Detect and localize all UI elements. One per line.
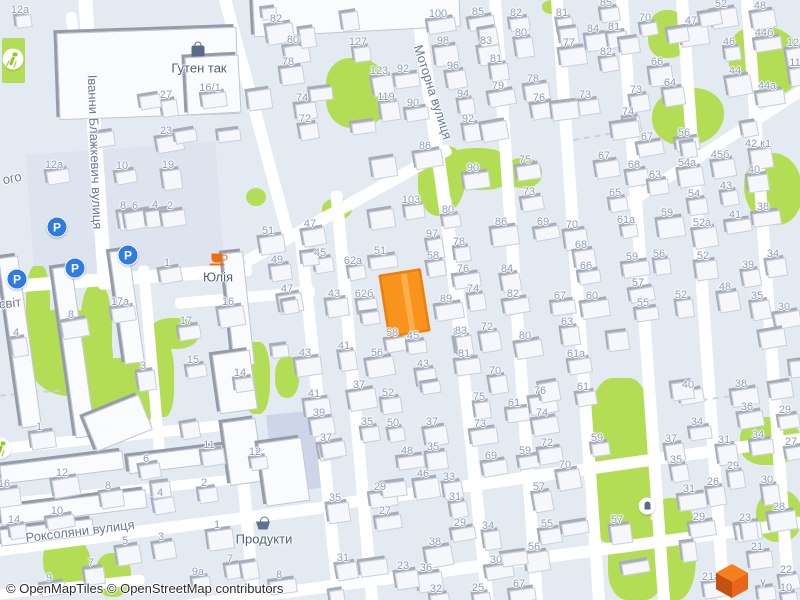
parking-icon: P: [118, 245, 139, 266]
building: [326, 298, 350, 319]
house-number-label: 57: [632, 277, 644, 289]
house-number-label: 89: [440, 293, 452, 305]
house-number-label: 52: [715, 0, 727, 10]
house-number-label: 73: [474, 418, 486, 430]
building: [161, 99, 179, 118]
building: [353, 46, 372, 63]
house-number-label: 44: [729, 65, 741, 77]
house-number-label: 54a: [678, 157, 696, 169]
house-number-label: 59: [626, 251, 638, 263]
house-number-label: 72: [481, 321, 493, 333]
house-number-label: 48: [719, 281, 731, 293]
house-number-label: 2: [201, 477, 207, 489]
building: [482, 530, 501, 551]
house-number-label: 11: [203, 439, 214, 451]
house-number-label: 8: [276, 569, 282, 581]
building: [11, 337, 30, 358]
house-number-label: 43: [720, 180, 732, 192]
building: [366, 356, 397, 380]
openstreetmap-link[interactable]: OpenStreetMap contributors: [120, 581, 283, 596]
house-number-label: 5: [122, 535, 128, 547]
cup-icon: [212, 254, 223, 263]
building: [15, 14, 33, 29]
house-number-label: 30: [778, 301, 790, 313]
house-number-label: 48: [754, 0, 766, 12]
house-number-label: 55: [541, 518, 553, 530]
house-number-label: 83: [455, 325, 467, 337]
house-number-label: 9a: [192, 566, 204, 578]
house-number-label: 25: [472, 582, 484, 594]
house-number-label: 82: [270, 13, 282, 25]
house-number-label: 35: [361, 416, 373, 428]
building: [234, 377, 255, 394]
house-number-label: 63: [649, 169, 661, 181]
building: [427, 260, 448, 279]
building: [724, 46, 742, 62]
building: [558, 46, 587, 68]
house-number-label: 34: [691, 416, 703, 428]
building: [200, 448, 225, 467]
house-number-label: 56: [653, 248, 665, 260]
building: [198, 487, 219, 504]
house-number-label: 86: [419, 140, 431, 152]
house-number-label: 44б: [755, 27, 774, 39]
house-number-label: 84: [587, 23, 599, 35]
building: [467, 293, 486, 312]
building: [609, 524, 632, 546]
house-number-label: 58: [427, 250, 439, 262]
house-number-label: 7: [227, 553, 233, 565]
house-number-label: 1: [164, 257, 170, 269]
building: [551, 100, 580, 121]
building: [695, 260, 719, 282]
house-number-label: 70: [639, 12, 651, 24]
building: [338, 350, 358, 372]
parking-icon: P: [47, 217, 68, 238]
building: [99, 489, 124, 509]
house-number-label: 16: [0, 478, 10, 490]
house-number-label: 72: [541, 437, 553, 449]
building: [442, 214, 462, 230]
house-number-label: 59: [661, 207, 673, 219]
building: [578, 99, 601, 117]
house-number-label: 61: [577, 381, 589, 393]
building: [789, 358, 800, 378]
building: [207, 528, 236, 551]
house-number-label: 73: [523, 186, 535, 198]
house-number-label: 61: [508, 397, 520, 409]
house-number-label: 28: [773, 501, 785, 513]
house-number-label: 10: [116, 160, 128, 172]
house-number-label: 81: [556, 7, 568, 19]
house-number-label: 57: [533, 481, 545, 493]
building: [381, 397, 403, 416]
house-number-label: 42 к1: [745, 138, 771, 150]
building: [746, 174, 769, 194]
house-number-label: 52: [382, 387, 394, 399]
house-number-label: 43: [417, 358, 429, 370]
building: [678, 492, 708, 512]
house-number-label: 31: [683, 483, 695, 495]
building: [717, 290, 741, 313]
house-number-label: 47: [304, 218, 316, 230]
building: [532, 491, 554, 514]
parking-icon: P: [7, 269, 28, 290]
house-number-label: 40: [682, 379, 694, 391]
house-number-label: 57: [611, 514, 623, 526]
building: [607, 331, 630, 352]
building: [532, 416, 561, 437]
building: [341, 11, 361, 32]
building: [388, 427, 406, 444]
house-number-label: 78: [527, 73, 539, 85]
house-number-label: 83: [480, 35, 492, 47]
building: [379, 101, 400, 122]
building: [347, 265, 366, 282]
building: [748, 550, 774, 570]
house-number-label: 50: [387, 417, 399, 429]
building: [750, 299, 772, 321]
building: [137, 370, 158, 392]
building: [279, 65, 304, 86]
house-number-label: 34: [482, 520, 494, 532]
building: [741, 121, 759, 139]
house-number-label: 43: [299, 347, 311, 359]
building: [725, 74, 753, 98]
house-number-label: 80: [515, 27, 527, 39]
house-number-label: 77: [563, 37, 575, 49]
house-number-label: 29: [693, 511, 705, 523]
house-number-label: 1: [36, 421, 42, 433]
house-number-label: 45б: [711, 149, 730, 161]
house-number-label: 81: [608, 21, 620, 33]
house-number-label: 59: [591, 432, 603, 444]
building: [0, 487, 22, 508]
house-number-label: 16: [222, 296, 234, 308]
house-number-label: 80: [287, 34, 299, 46]
building: [769, 380, 794, 400]
building: [654, 258, 672, 276]
house-number-label: 29: [374, 481, 386, 493]
house-number-label: 41: [338, 340, 350, 352]
house-number-label: 67: [598, 150, 610, 162]
house-number-label: 8: [105, 480, 111, 492]
building: [789, 67, 800, 87]
house-number-label: 74: [622, 106, 634, 118]
house-number-label: 49: [271, 254, 283, 266]
building: [269, 264, 292, 283]
house-number-label: 63: [561, 316, 573, 328]
building: [539, 527, 563, 545]
house-number-label: 76: [533, 92, 545, 104]
house-number-label: 67: [641, 131, 653, 143]
house-number-label: 19: [162, 159, 174, 171]
house-number-label: 119: [377, 91, 395, 103]
house-number-label: 4: [157, 487, 163, 499]
building: [479, 330, 502, 353]
house-number-label: 45: [314, 247, 326, 259]
building: [361, 311, 381, 326]
house-number-label: 56: [528, 541, 540, 553]
building: [711, 158, 737, 180]
building: [301, 227, 327, 248]
house-number-label: 12a: [45, 159, 63, 171]
house-number-label: 81: [490, 53, 502, 65]
house-number-label: 85: [472, 6, 484, 18]
house-number-label: 79: [492, 80, 504, 92]
house-number-label: 36: [420, 562, 432, 574]
house-number-label: 12: [249, 446, 261, 458]
house-number-label: 103: [402, 194, 420, 206]
house-number-label: 8: [68, 309, 74, 321]
house-number-label: 32: [430, 583, 442, 595]
building: [218, 305, 247, 329]
runner-icon: [0, 438, 12, 459]
building: [675, 299, 694, 319]
house-number-label: 64: [664, 77, 676, 89]
house-number-label: 47: [685, 15, 697, 27]
house-number-label: 78: [453, 236, 465, 248]
house-number-label: 61a: [567, 348, 585, 360]
house-number-label: 3: [158, 531, 164, 543]
house-number-label: 17a: [111, 296, 129, 308]
house-number-label: 44a: [758, 80, 776, 92]
building: [413, 477, 441, 501]
house-number-label: 30: [761, 474, 773, 486]
house-number-label: 90: [467, 162, 479, 174]
house-number-label: 123: [370, 65, 388, 77]
house-number-label: 52: [675, 289, 687, 301]
building: [159, 266, 183, 285]
runner-icon: [3, 49, 24, 70]
house-number-label: 51: [262, 225, 274, 237]
house-number-label: 36: [741, 401, 753, 413]
building: [742, 269, 763, 289]
house-number-label: 6: [143, 453, 149, 465]
building: [455, 357, 482, 376]
house-number-label: 31: [718, 434, 730, 446]
house-number-label: 45: [407, 330, 419, 342]
house-number-label: 35: [329, 492, 341, 504]
house-number-label: 86: [495, 216, 507, 228]
house-number-label: 70: [489, 365, 501, 377]
house-number-label: 35: [670, 454, 682, 466]
house-number-label: 127: [349, 36, 367, 48]
bag-icon: [192, 46, 205, 57]
house-number-label: 61a: [617, 214, 635, 226]
copyright-prefix: ©: [6, 581, 19, 596]
building: [347, 388, 378, 413]
building: [271, 344, 289, 359]
house-number-label: 70: [559, 459, 571, 471]
building: [677, 166, 705, 189]
house-number-label: 17: [180, 315, 192, 327]
house-number-label: 67: [554, 290, 566, 302]
building: [581, 299, 611, 320]
house-number-label: 26: [707, 476, 719, 488]
house-number-label: 52a: [693, 217, 711, 229]
house-number-label: 23: [160, 125, 172, 137]
house-number-label: 12a: [11, 4, 29, 16]
house-number-label: 59: [519, 445, 531, 457]
street-name-label: ого: [1, 169, 23, 188]
house-number-label: 4: [13, 327, 19, 339]
house-number-label: 6: [132, 200, 138, 212]
building: [250, 456, 269, 471]
house-number-label: 41: [308, 388, 320, 400]
house-number-label: 27: [785, 436, 797, 448]
poi-label: Продукти: [236, 532, 293, 547]
house-number-label: 10: [51, 505, 63, 517]
building: [462, 123, 482, 143]
building: [138, 462, 161, 480]
house-number-label: 66: [580, 260, 592, 272]
house-number-label: 100: [429, 8, 447, 20]
house-number-label: 92: [462, 113, 474, 125]
house-number-label: 97: [426, 228, 438, 240]
poi-label: Юлія: [203, 270, 233, 285]
building: [591, 442, 611, 457]
house-number-label: 27: [160, 89, 172, 101]
house-number-label: 65: [609, 187, 621, 199]
building: [298, 122, 319, 141]
house-number-label: 14: [8, 514, 20, 526]
house-number-label: 22: [780, 564, 792, 576]
building: [556, 468, 582, 492]
house-number-label: 81: [458, 348, 470, 360]
house-number-label: 39: [313, 407, 325, 419]
building: [490, 225, 519, 248]
house-number-label: 55: [637, 297, 649, 309]
house-number-label: 21: [751, 541, 763, 553]
building: [335, 561, 359, 581]
building: [766, 258, 789, 279]
basket-icon: [256, 517, 270, 530]
house-number-label: 52: [697, 250, 709, 262]
building: [621, 224, 639, 240]
house-number-label: 73: [630, 84, 642, 96]
building: [329, 589, 346, 600]
house-number-label: 62б: [355, 288, 374, 300]
building: [648, 179, 670, 197]
house-number-label: 73: [579, 89, 591, 101]
house-number-label: 75: [473, 391, 485, 403]
building: [217, 129, 241, 144]
house-number-label: 58: [386, 327, 398, 339]
house-number-label: 38: [757, 201, 769, 213]
house-number-label: 47: [281, 283, 293, 295]
house-number-label: 62a: [344, 255, 362, 267]
building: [720, 190, 739, 208]
building: [681, 541, 698, 563]
building: [489, 375, 510, 396]
house-number-label: 33: [443, 471, 455, 483]
attribution: © OpenMapTiles © OpenStreetMap contribut…: [6, 581, 283, 596]
building: [153, 540, 178, 562]
building: [247, 88, 274, 111]
building: [181, 421, 202, 441]
building: [371, 156, 399, 180]
monument-icon: [639, 498, 656, 515]
house-number-label: 12: [787, 37, 799, 49]
house-number-label: 54: [688, 188, 700, 200]
openmaptiles-link[interactable]: OpenMapTiles: [19, 581, 103, 596]
building: [741, 521, 759, 542]
house-number-label: 35: [427, 441, 439, 453]
house-number-label: 35: [751, 290, 763, 302]
house-number-label: 8: [120, 200, 126, 212]
building: [361, 426, 381, 444]
house-number-label: 11: [789, 57, 800, 69]
house-number-label: 29: [454, 517, 466, 529]
house-number-label: 37: [353, 379, 365, 391]
house-number-label: 69: [537, 216, 549, 228]
building: [421, 381, 442, 396]
house-number-label: 94: [457, 88, 469, 100]
house-number-label: у: [760, 576, 766, 588]
parking-icon: P: [65, 258, 86, 279]
house-number-label: 72: [299, 113, 311, 125]
street-name-label: світ: [0, 294, 22, 311]
copyright-middle: ©: [103, 581, 120, 596]
building: [600, 56, 620, 74]
house-number-label: 37: [426, 416, 438, 428]
building: [692, 226, 719, 250]
building: [116, 544, 143, 567]
building: [369, 208, 397, 231]
house-number-label: 1: [214, 519, 220, 531]
house-number-label: 23: [397, 560, 409, 572]
house-number-label: 80: [442, 204, 454, 216]
building: [656, 216, 686, 240]
maptiler-cube-logo: [716, 564, 748, 598]
house-number-label: 37: [665, 433, 677, 445]
house-number-label: 37: [320, 432, 332, 444]
house-number-label: 7: [88, 557, 94, 569]
house-number-label: 46: [723, 36, 735, 48]
house-number-label: 76: [534, 385, 546, 397]
house-number-label: 23: [739, 512, 751, 524]
house-number-label: 56: [371, 347, 383, 359]
house-number-label: 15: [187, 354, 199, 366]
house-number-label: 48: [401, 445, 413, 457]
building: [29, 430, 56, 450]
house-number-label: 75: [519, 154, 531, 166]
house-number-label: 27: [379, 505, 391, 517]
house-number-label: 12: [56, 467, 68, 479]
building: [619, 37, 641, 56]
building: [561, 520, 590, 537]
house-number-label: 29: [727, 460, 739, 472]
building: [351, 120, 376, 135]
building: [327, 502, 352, 525]
house-number-label: 38: [735, 378, 747, 390]
building: [670, 464, 690, 484]
house-number-label: 68: [575, 239, 587, 251]
building: [258, 234, 286, 256]
building: [407, 340, 428, 356]
map-canvas[interactable]: © OpenMapTiles © OpenStreetMap contribut…: [0, 0, 800, 600]
building: [561, 326, 581, 347]
building: [728, 470, 746, 490]
house-number-label: 96: [447, 60, 459, 72]
building: [152, 496, 175, 515]
building: [282, 299, 300, 316]
house-number-label: 41: [729, 209, 741, 221]
house-number-label: 69: [485, 450, 497, 462]
house-number-label: 16/1: [199, 82, 220, 94]
house-number-label: 30: [490, 554, 502, 566]
